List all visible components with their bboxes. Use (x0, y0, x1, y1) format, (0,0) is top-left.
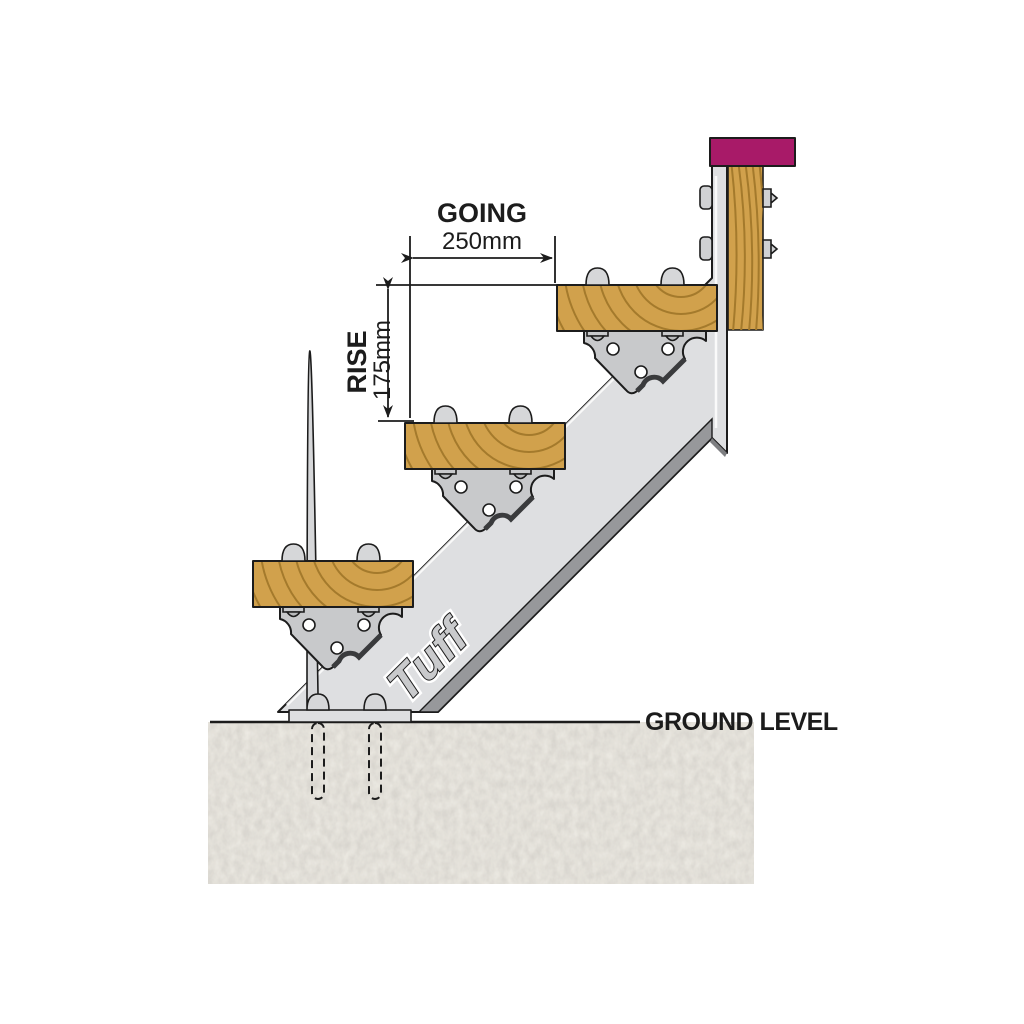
bolt-head (700, 186, 712, 209)
going-dimension: GOING 250mm (410, 198, 555, 418)
bolt-nut (763, 189, 777, 207)
stair-stringer-diagram: GOING 250mm RISE 175mm GROUND LEVEL (0, 0, 1024, 1024)
rise-dimension: RISE 175mm (342, 285, 557, 421)
going-label: GOING (437, 198, 527, 228)
bolt-head (700, 237, 712, 260)
rise-value: 175mm (369, 320, 396, 400)
concrete-texture (208, 722, 754, 884)
diagram-canvas: GOING 250mm RISE 175mm GROUND LEVEL (0, 0, 1024, 1024)
rise-label: RISE (342, 330, 372, 393)
ground-slab: GROUND LEVEL (208, 708, 838, 884)
post-cap (710, 138, 795, 166)
bolt-nut (763, 240, 777, 258)
ground-level-label: GROUND LEVEL (645, 708, 838, 736)
going-value: 250mm (442, 228, 522, 255)
foot-plate (289, 710, 411, 722)
foot-bolt-head (364, 694, 386, 710)
